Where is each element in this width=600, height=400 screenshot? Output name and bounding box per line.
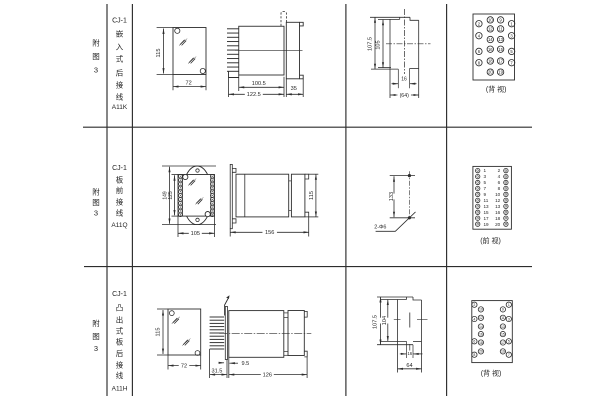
svg-text:20: 20 (488, 70, 493, 75)
svg-text:3: 3 (94, 344, 98, 353)
svg-text:2-Φ6: 2-Φ6 (374, 224, 386, 230)
svg-text:附: 附 (92, 319, 100, 328)
svg-text:(背 视): (背 视) (481, 368, 502, 377)
svg-text:8: 8 (498, 186, 501, 191)
svg-text:107.5: 107.5 (373, 315, 379, 329)
svg-text:A11K: A11K (112, 104, 128, 111)
svg-text:72: 72 (181, 363, 187, 369)
svg-text:3: 3 (94, 66, 98, 75)
svg-text:式: 式 (116, 326, 124, 336)
svg-text:15: 15 (498, 47, 503, 52)
svg-text:133: 133 (389, 192, 395, 201)
svg-text:接: 接 (116, 196, 124, 206)
svg-text:图: 图 (92, 332, 100, 341)
svg-text:图: 图 (92, 52, 100, 61)
svg-text:12: 12 (495, 198, 501, 203)
svg-text:2: 2 (498, 168, 501, 173)
svg-text:18: 18 (479, 341, 483, 345)
svg-text:11: 11 (484, 198, 489, 203)
svg-text:14: 14 (479, 325, 483, 329)
svg-text:5: 5 (484, 180, 487, 185)
svg-text:6: 6 (473, 340, 475, 344)
svg-text:CJ-1: CJ-1 (112, 165, 127, 172)
svg-text:4: 4 (473, 317, 475, 321)
svg-text:16: 16 (401, 76, 407, 82)
svg-text:CJ-1: CJ-1 (112, 18, 127, 25)
svg-text:入: 入 (116, 43, 124, 52)
svg-text:(背 视): (背 视) (486, 85, 507, 94)
svg-text:嵌: 嵌 (116, 30, 124, 39)
svg-text:10: 10 (479, 308, 483, 312)
svg-text:板: 板 (116, 174, 124, 184)
svg-text:3: 3 (94, 209, 98, 218)
svg-text:18: 18 (495, 216, 501, 221)
svg-text:31.5: 31.5 (211, 369, 222, 375)
svg-text:附: 附 (92, 188, 100, 197)
svg-text:1: 1 (508, 303, 510, 307)
svg-text:16: 16 (407, 351, 412, 356)
svg-text:16: 16 (479, 332, 483, 336)
svg-text:105: 105 (191, 231, 200, 237)
svg-text:凸: 凸 (116, 304, 124, 313)
svg-text:6: 6 (498, 180, 501, 185)
svg-text:13: 13 (501, 325, 505, 329)
svg-text:13: 13 (484, 204, 490, 209)
svg-text:104: 104 (382, 316, 388, 325)
svg-text:11: 11 (501, 316, 505, 320)
svg-text:12: 12 (488, 26, 493, 31)
svg-text:125: 125 (168, 191, 174, 200)
svg-text:后: 后 (116, 68, 124, 78)
svg-text:72: 72 (185, 80, 191, 86)
svg-text:3: 3 (508, 317, 510, 321)
svg-text:12: 12 (479, 316, 483, 320)
svg-text:线: 线 (116, 92, 124, 102)
svg-text:9: 9 (484, 192, 487, 197)
svg-text:17: 17 (498, 59, 503, 64)
svg-text:19: 19 (498, 70, 503, 75)
svg-text:附: 附 (92, 39, 100, 48)
svg-text:5: 5 (508, 340, 510, 344)
svg-text:13: 13 (498, 37, 503, 42)
svg-text:线: 线 (116, 370, 124, 380)
svg-text:7: 7 (484, 186, 487, 191)
svg-text:7: 7 (508, 353, 510, 357)
svg-text:3: 3 (484, 174, 487, 179)
svg-text:115: 115 (156, 328, 162, 337)
svg-text:100.5: 100.5 (252, 81, 266, 87)
svg-text:线: 线 (116, 208, 124, 218)
svg-text:出: 出 (116, 315, 124, 325)
svg-text:20: 20 (479, 350, 483, 354)
svg-text:1: 1 (484, 168, 487, 173)
svg-text:19: 19 (501, 350, 505, 354)
svg-text:9.5: 9.5 (242, 361, 250, 367)
svg-text:14: 14 (488, 37, 493, 42)
svg-text:图: 图 (92, 198, 100, 207)
svg-text:9: 9 (502, 308, 504, 312)
svg-text:CJ-1: CJ-1 (112, 291, 127, 298)
svg-text:15: 15 (484, 210, 490, 215)
svg-text:接: 接 (116, 80, 124, 90)
svg-text:35: 35 (291, 86, 297, 92)
svg-text:10: 10 (488, 17, 493, 22)
svg-text:18: 18 (488, 59, 493, 64)
svg-text:115: 115 (156, 49, 162, 58)
svg-text:接: 接 (116, 360, 124, 370)
svg-text:板: 板 (116, 337, 124, 347)
svg-text:15: 15 (501, 332, 505, 336)
svg-text:126: 126 (263, 372, 272, 378)
svg-text:2: 2 (473, 303, 475, 307)
svg-text:10: 10 (495, 192, 501, 197)
svg-text:A11Q: A11Q (111, 222, 127, 229)
svg-text:17: 17 (484, 216, 490, 221)
svg-text:前: 前 (116, 185, 124, 195)
svg-text:后: 后 (116, 348, 124, 358)
svg-text:17: 17 (501, 341, 505, 345)
svg-text:20: 20 (495, 222, 501, 227)
svg-text:A11H: A11H (112, 386, 128, 393)
svg-text:11: 11 (498, 26, 503, 31)
svg-text:式: 式 (116, 54, 124, 64)
svg-text:(64): (64) (400, 93, 409, 99)
svg-text:156: 156 (265, 230, 274, 236)
svg-text:107.5: 107.5 (367, 37, 373, 51)
svg-text:(前 视): (前 视) (480, 236, 501, 245)
svg-text:13: 13 (495, 204, 501, 209)
svg-text:122.5: 122.5 (247, 92, 261, 98)
svg-text:115: 115 (309, 191, 315, 200)
svg-text:4: 4 (498, 174, 501, 179)
svg-text:64: 64 (406, 363, 412, 369)
svg-text:105: 105 (376, 40, 382, 49)
svg-text:19: 19 (484, 222, 490, 227)
svg-text:8: 8 (473, 353, 475, 357)
svg-text:16: 16 (488, 47, 493, 52)
svg-text:16: 16 (495, 210, 501, 215)
